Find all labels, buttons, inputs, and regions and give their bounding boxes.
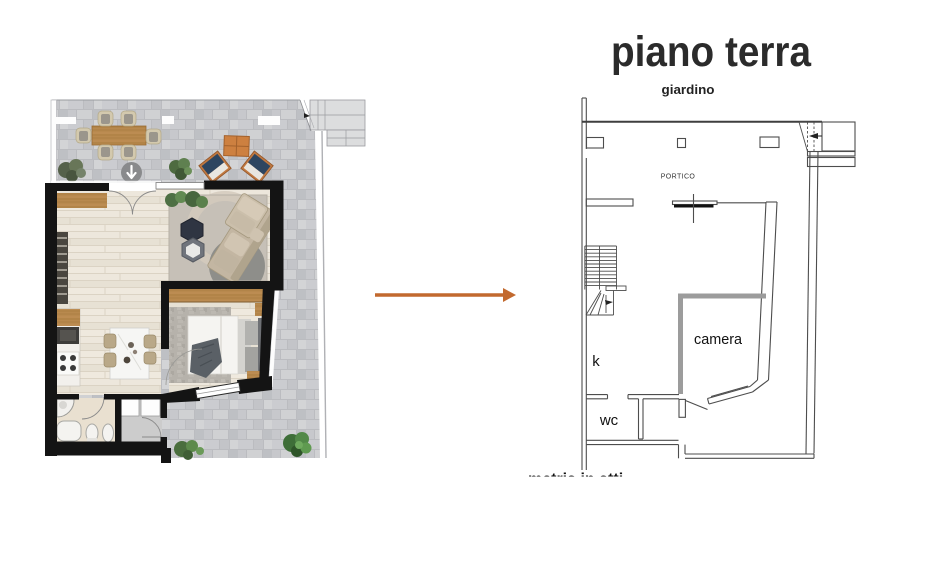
- svg-text:piano terra: piano terra: [611, 29, 811, 76]
- svg-text:k: k: [592, 353, 600, 370]
- svg-text:giardino: giardino: [662, 82, 715, 97]
- svg-text:PORTICO: PORTICO: [661, 174, 696, 181]
- svg-text:camera: camera: [694, 332, 743, 348]
- svg-text:wc: wc: [599, 412, 619, 429]
